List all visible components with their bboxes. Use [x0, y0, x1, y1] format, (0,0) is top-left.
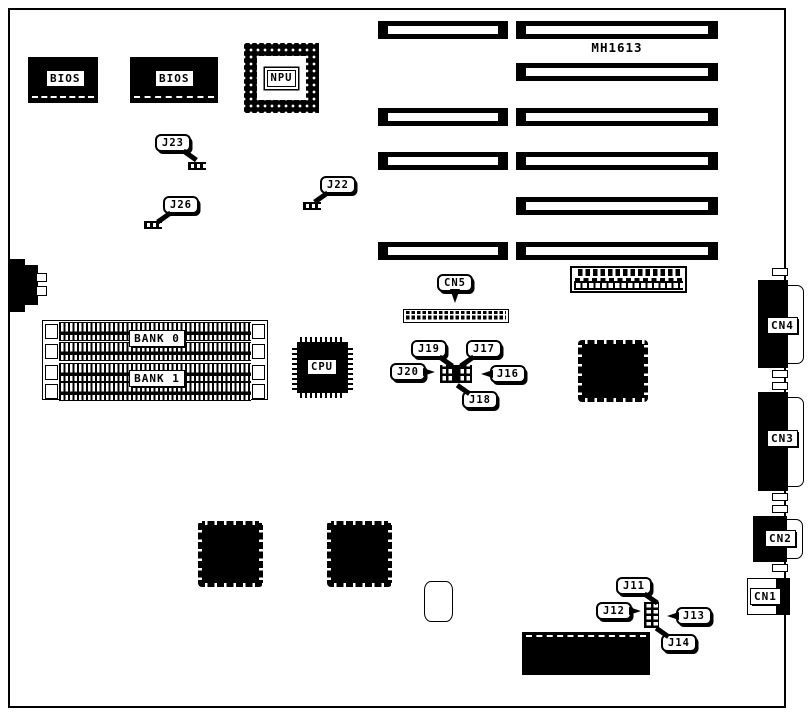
isa-slot: [516, 242, 718, 260]
slot-opening: [526, 113, 708, 121]
power-holes-row: [574, 281, 683, 290]
slot-opening: [526, 26, 708, 34]
jumper-label: J13: [683, 610, 705, 622]
simm-clip: [252, 324, 265, 339]
jumper-callout-j13: J13: [676, 607, 712, 625]
slot-opening: [388, 157, 498, 165]
jumper-callout-j19: J19: [411, 340, 447, 358]
pin-fringe: [300, 393, 345, 398]
slot-opening: [388, 26, 498, 34]
edge-connector-step-bottom: [8, 303, 25, 312]
jumper-block-j22: [303, 202, 321, 210]
simm-clip: [45, 344, 58, 359]
pin-fringe: [348, 345, 353, 390]
chip-notch-line: [134, 96, 214, 98]
board-model-text: MH1613: [557, 40, 677, 55]
simm-clip: [252, 344, 265, 359]
memory-banks: BANK 0 BANK 1: [42, 320, 268, 400]
edge-connector-body: [8, 265, 38, 305]
cn4-label: CN4: [767, 317, 798, 334]
jumper-callout-j14: J14: [661, 634, 697, 652]
bios-chip-left-label: BIOS: [46, 70, 85, 87]
isa-slot: [516, 21, 718, 39]
isa-slot: [378, 108, 508, 126]
cpu-label: CPU: [307, 359, 337, 375]
simm-clip: [45, 365, 58, 380]
isa-slot: [378, 152, 508, 170]
jumper-block-j23: [188, 162, 206, 170]
jumper-label: J18: [469, 394, 491, 406]
slot-opening: [526, 68, 708, 76]
jumper-callout-j20: J20: [390, 363, 426, 381]
rom-chip: [522, 632, 650, 675]
bank0-label: BANK 0: [129, 330, 185, 347]
jumper-callout-j12: J12: [596, 602, 632, 620]
pin-fringe: [300, 337, 345, 342]
jumper-callout-j16: J16: [490, 365, 526, 383]
chip-notch-line: [32, 96, 94, 98]
isa-slot: [516, 63, 718, 81]
jumper-block-j11-j14: [644, 602, 659, 628]
connector-label: CN5: [444, 277, 466, 289]
power-pins-row: [575, 269, 682, 276]
isa-slot: [378, 21, 508, 39]
npu-socket-cavity: NPU: [257, 56, 306, 100]
cn2-label: CN2: [765, 530, 796, 547]
cn2-mount-tab: [772, 505, 788, 513]
simm-clip: [45, 384, 58, 399]
pin-grid: [406, 311, 506, 321]
bank1-label: BANK 1: [129, 370, 185, 387]
bios-chip-right-label: BIOS: [155, 70, 194, 87]
chip-notch-line: [526, 635, 646, 637]
oscillator-outline: [424, 581, 453, 622]
npu-label: NPU: [267, 70, 297, 87]
bios-chip-left: BIOS: [28, 57, 98, 103]
cn3-mount-tab: [772, 493, 788, 501]
jumper-callout-j22: J22: [320, 176, 356, 194]
simm-clip: [252, 365, 265, 380]
slot-opening: [526, 157, 708, 165]
connector-callout-cn5: CN5: [437, 274, 473, 292]
io-controller-chip: [327, 521, 392, 587]
slot-opening: [388, 247, 498, 255]
power-connector: [570, 266, 687, 293]
jumper-callout-j18: J18: [462, 391, 498, 409]
cn2-mount-tab: [772, 564, 788, 572]
jumper-label: J23: [162, 137, 184, 149]
simm-clip: [252, 384, 265, 399]
jumper-label: J17: [473, 343, 495, 355]
chipset-chip: [578, 340, 648, 402]
cn3-mount-tab: [772, 382, 788, 390]
jumper-label: J11: [623, 580, 645, 592]
jumper-label: J26: [170, 199, 192, 211]
npu-socket: NPU: [244, 43, 319, 113]
slot-opening: [526, 247, 708, 255]
pin-fringe: [292, 345, 297, 390]
edge-connector-pin-tab: [36, 286, 47, 296]
cn1-label: CN1: [750, 588, 781, 605]
isa-slot: [516, 108, 718, 126]
jumper-label: J14: [668, 637, 690, 649]
jumper-callout-j17: J17: [466, 340, 502, 358]
slot-opening: [388, 113, 498, 121]
motherboard-diagram: { "board": { "model": "MH1613", "bg_colo…: [0, 0, 808, 716]
io-controller-chip: [198, 521, 263, 587]
isa-slot: [516, 197, 718, 215]
bios-chip-right: BIOS: [130, 57, 218, 103]
jumper-block-j16-j20: [440, 365, 472, 383]
jumper-label: J22: [327, 179, 349, 191]
jumper-callout-j11: J11: [616, 577, 652, 595]
jumper-callout-j26: J26: [163, 196, 199, 214]
isa-slot: [378, 242, 508, 260]
slot-opening: [526, 202, 708, 210]
jumper-label: J16: [497, 368, 519, 380]
cn5-pin-header: [403, 309, 509, 323]
cn4-mount-tab: [772, 370, 788, 378]
jumper-label: J12: [603, 605, 625, 617]
isa-slot: [516, 152, 718, 170]
cn4-mount-tab: [772, 268, 788, 276]
simm-clip: [45, 324, 58, 339]
cpu-chip: CPU: [297, 342, 348, 393]
jumper-label: J19: [418, 343, 440, 355]
jumper-label: J20: [397, 366, 419, 378]
cn3-label: CN3: [767, 430, 798, 447]
jumper-callout-j23: J23: [155, 134, 191, 152]
edge-connector-pin-tab: [36, 273, 47, 282]
